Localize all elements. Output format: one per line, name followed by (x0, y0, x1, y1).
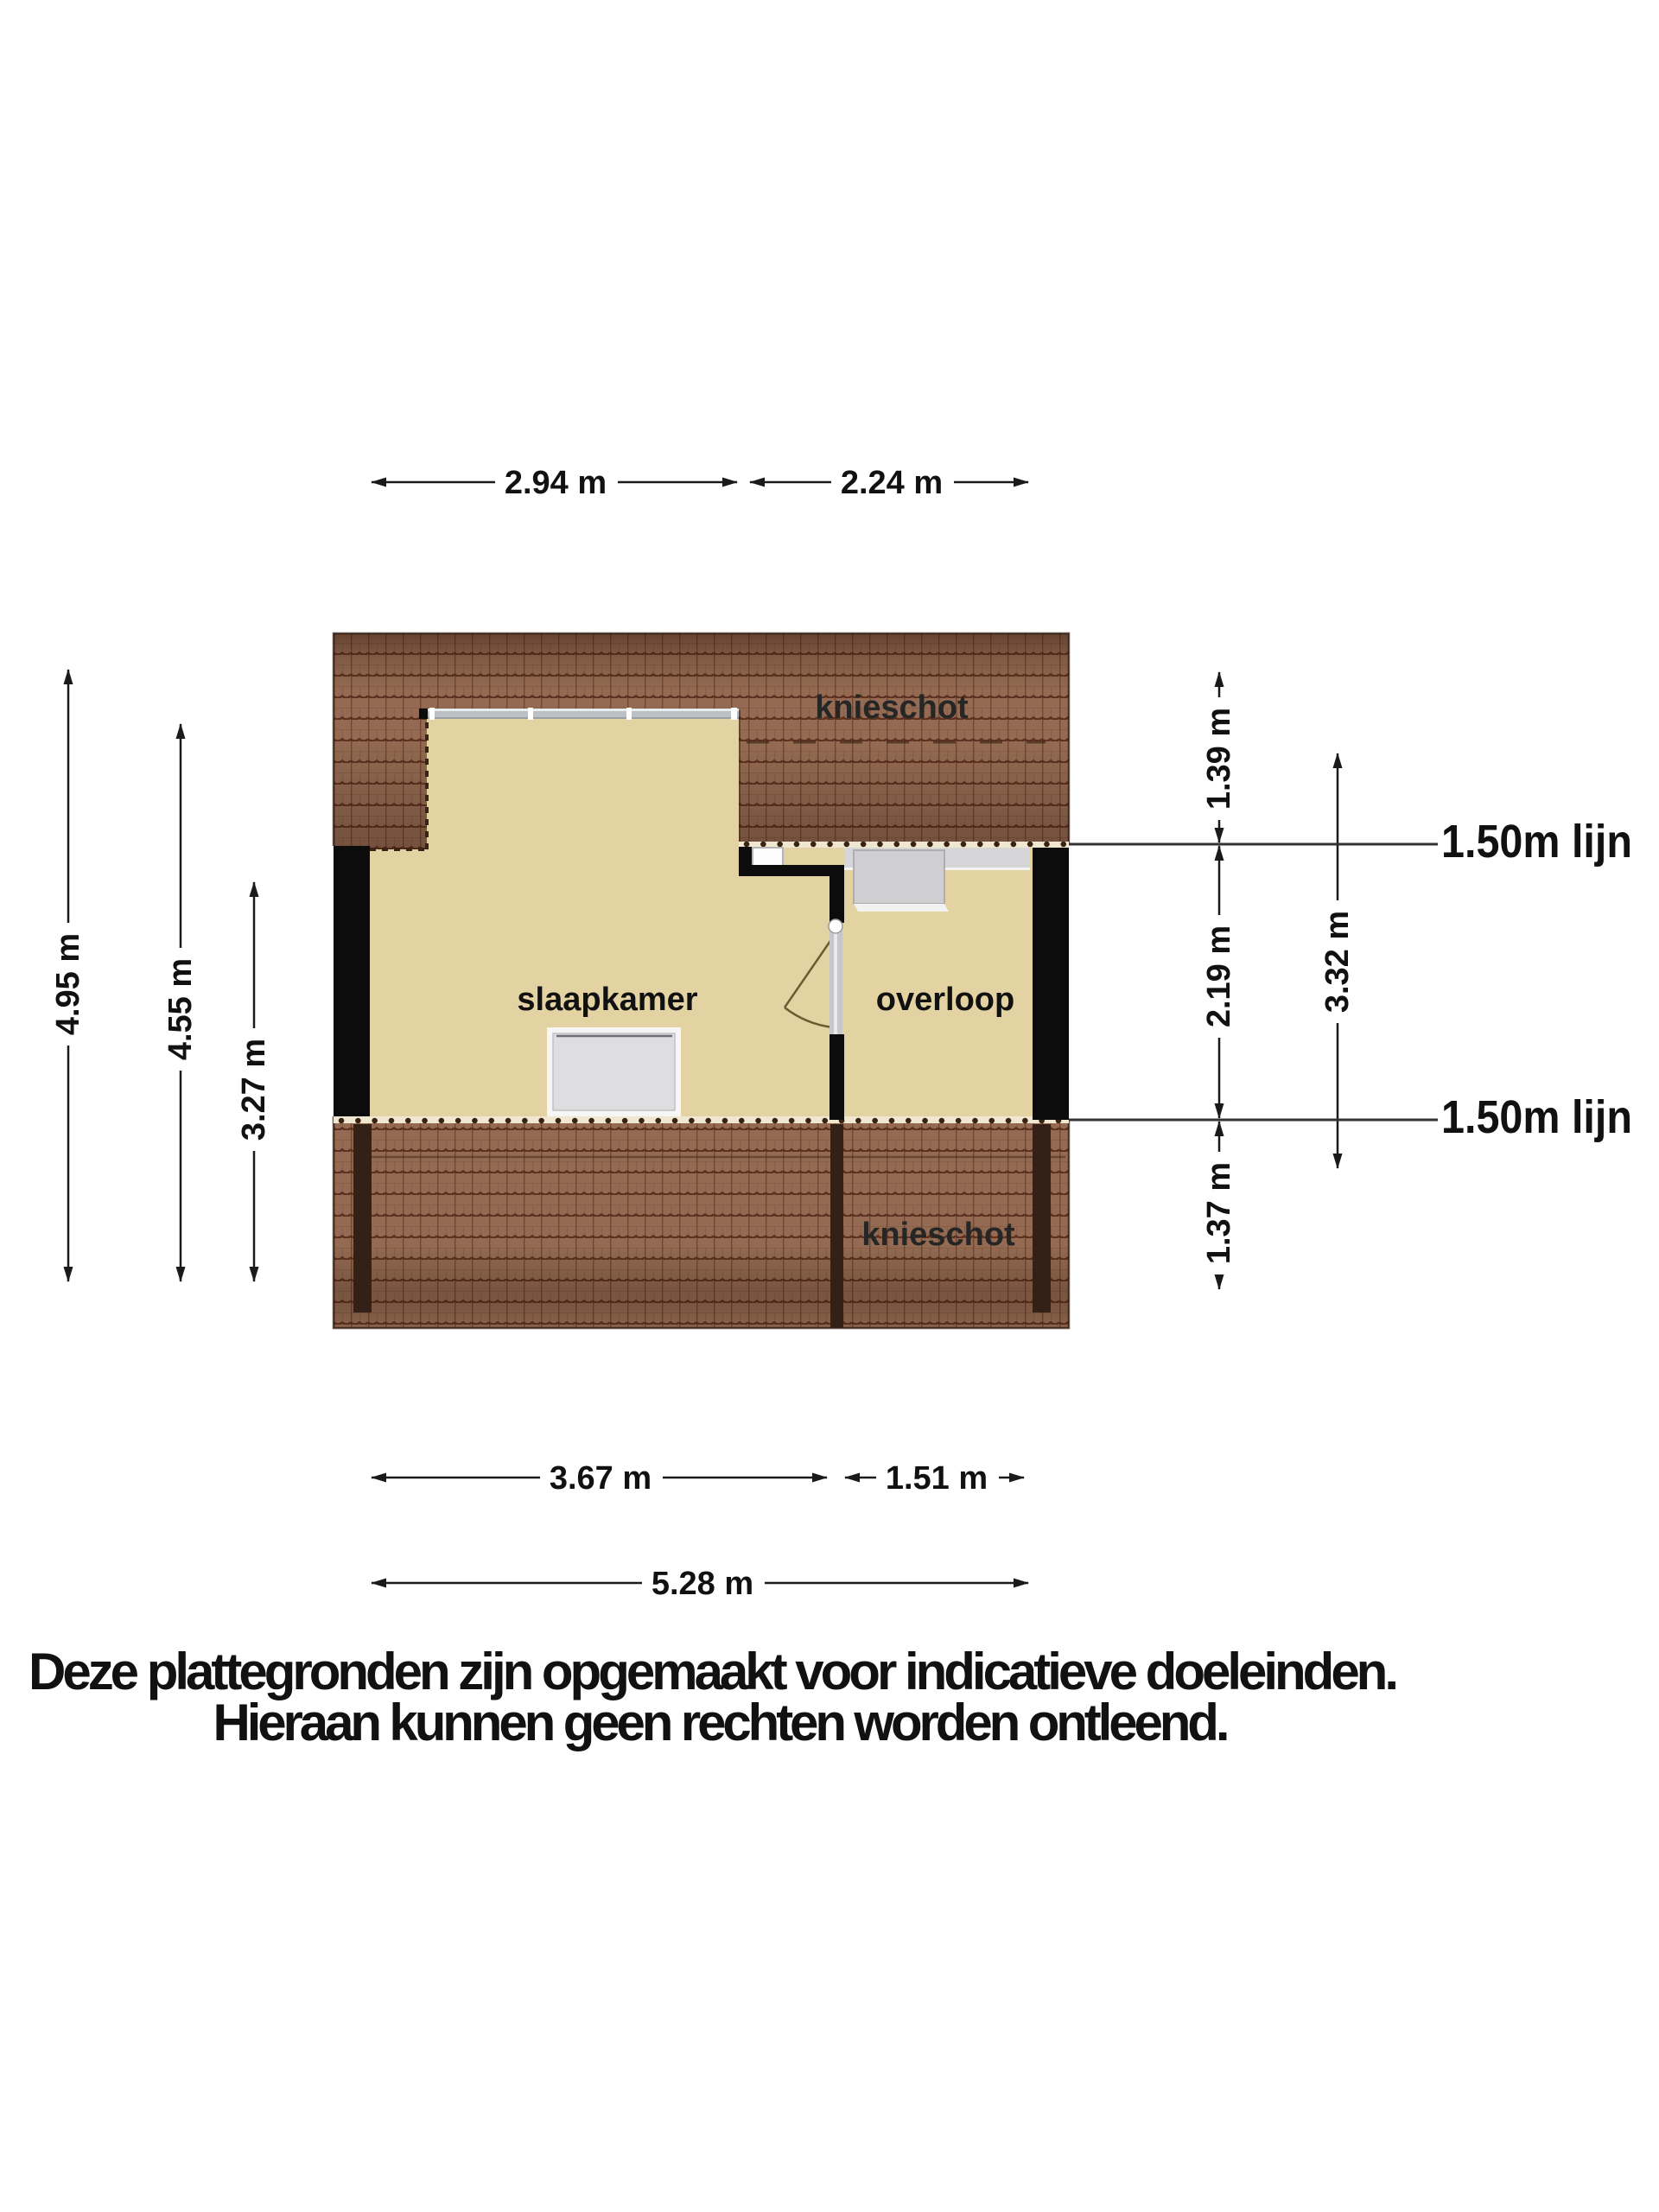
svg-text:3.67 m: 3.67 m (550, 1460, 652, 1497)
svg-text:2.24 m: 2.24 m (841, 465, 943, 501)
svg-text:2.19 m: 2.19 m (1201, 925, 1237, 1027)
svg-text:1.51 m: 1.51 m (886, 1460, 988, 1497)
svg-text:knieschot: knieschot (861, 1217, 1015, 1253)
svg-text:3.27 m: 3.27 m (236, 1039, 272, 1141)
svg-text:4.55 m: 4.55 m (162, 958, 199, 1060)
svg-text:4.95 m: 4.95 m (50, 933, 86, 1035)
svg-text:2.94 m: 2.94 m (505, 465, 607, 501)
svg-text:1.50m lijn: 1.50m lijn (1441, 1091, 1632, 1143)
svg-text:overloop: overloop (876, 982, 1014, 1018)
svg-text:1.39 m: 1.39 m (1201, 708, 1237, 810)
svg-text:1.37 m: 1.37 m (1201, 1162, 1237, 1264)
svg-text:slaapkamer: slaapkamer (517, 982, 697, 1018)
svg-text:1.50m lijn: 1.50m lijn (1441, 816, 1632, 868)
svg-text:Deze plattegronden zijn opgema: Deze plattegronden zijn opgemaakt voor i… (29, 1643, 1399, 1700)
svg-text:knieschot: knieschot (815, 690, 969, 726)
svg-text:Hieraan kunnen geen rechten wo: Hieraan kunnen geen rechten worden ontle… (213, 1694, 1230, 1751)
svg-text:3.32 m: 3.32 m (1319, 911, 1356, 1013)
svg-text:5.28 m: 5.28 m (652, 1566, 753, 1602)
